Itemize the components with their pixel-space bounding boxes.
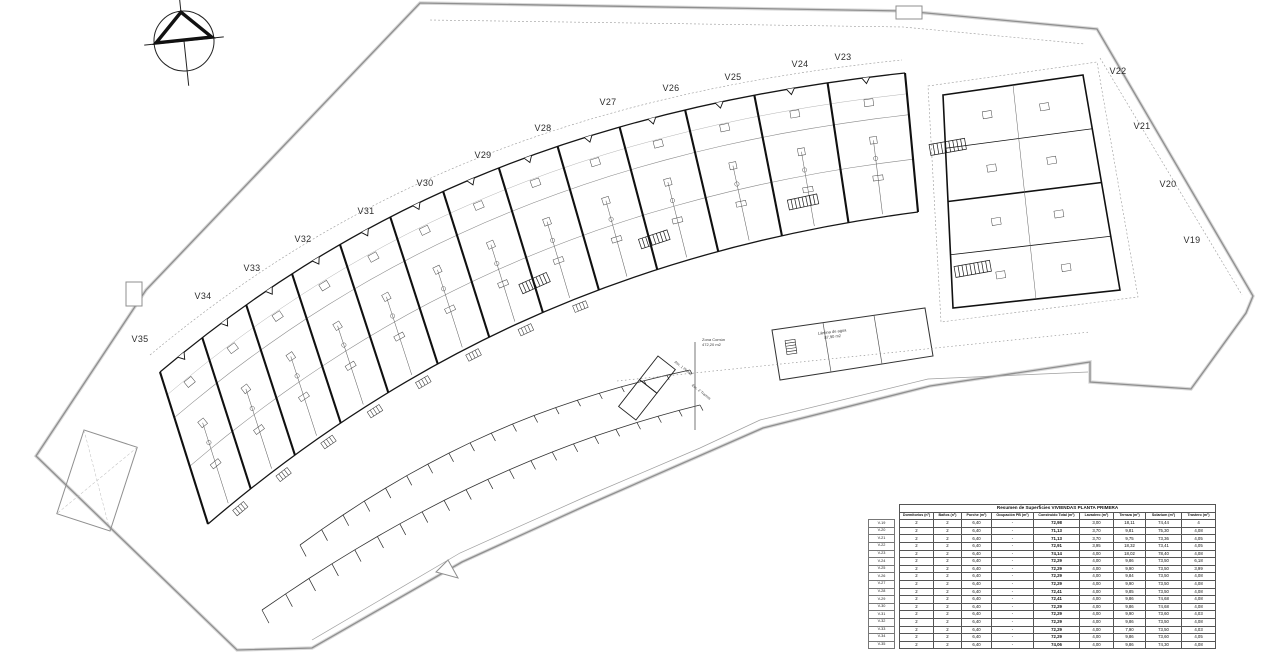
value-cell: 6,18: [1182, 558, 1216, 566]
value-cell: 6,40: [962, 542, 992, 550]
row-label: V-23: [869, 550, 895, 558]
parking-stall-line: [637, 423, 641, 430]
value-cell: 6,40: [962, 611, 992, 619]
furniture-icon: [790, 110, 800, 118]
value-cell: 73,60: [1146, 634, 1182, 642]
value-cell: 2: [900, 565, 934, 573]
value-cell: 3,99: [1182, 565, 1216, 573]
value-cell: 2: [900, 558, 934, 566]
value-cell: 74,44: [1146, 520, 1182, 528]
value-cell: 9,84: [1114, 573, 1146, 581]
boundary-notch-top: [896, 6, 922, 19]
value-cell: 2: [934, 634, 962, 642]
table-row: V-23226,40-74,144,0018,0278,404,08: [869, 550, 1216, 558]
entrance-arrow-icon: [221, 319, 231, 329]
value-cell: 72,29: [1034, 626, 1080, 634]
total-value: 68,7: [1182, 649, 1216, 653]
table-row: V-24226,40-72,294,009,8673,506,18: [869, 558, 1216, 566]
value-cell: 72,91: [1034, 542, 1080, 550]
value-cell: 72,29: [1034, 634, 1080, 642]
party-wall: [905, 73, 918, 212]
row-label: V-28: [869, 588, 895, 596]
stair-hatch-icon: [929, 138, 966, 155]
value-cell: -: [992, 596, 1034, 604]
value-cell: 74,68: [1146, 603, 1182, 611]
value-cell: 6,40: [962, 588, 992, 596]
value-cell: 72,98: [1034, 520, 1080, 528]
value-cell: -: [992, 626, 1034, 634]
table-row: V-26226,40-72,294,009,8473,504,08: [869, 573, 1216, 581]
parking-stall-line: [407, 476, 412, 486]
total-value: [962, 649, 992, 653]
value-cell: 2: [900, 596, 934, 604]
table-cell: [869, 505, 895, 513]
value-cell: 2: [900, 527, 934, 535]
row-label: V-27: [869, 580, 895, 588]
value-cell: 73,60: [1146, 611, 1182, 619]
parking-stall-line: [364, 501, 370, 511]
value-cell: 2: [900, 618, 934, 626]
furniture-icon: [991, 217, 1001, 225]
value-cell: 73,50: [1146, 580, 1182, 588]
value-cell: 4,05: [1182, 535, 1216, 543]
parking-stall-line: [355, 550, 361, 562]
stair-hatch-icon: [518, 324, 534, 336]
value-cell: 4,03: [1182, 626, 1216, 634]
parking-stall-line: [343, 515, 349, 526]
value-cell: 9,90: [1114, 580, 1146, 588]
value-cell: 4,00: [1080, 565, 1114, 573]
value-cell: 73,50: [1146, 588, 1182, 596]
row-label: V-30: [869, 603, 895, 611]
value-cell: 4,08: [1182, 641, 1216, 649]
value-cell: 4,00: [1080, 626, 1114, 634]
entrance-arrow-icon: [584, 135, 593, 143]
value-cell: 7,90: [1114, 626, 1146, 634]
table-row: V-20226,40-71,133,709,8175,304,08: [869, 527, 1216, 535]
value-cell: 2: [934, 573, 962, 581]
value-cell: 4,05: [1182, 542, 1216, 550]
parking-stall-line: [513, 424, 517, 431]
row-label: V-31: [869, 611, 895, 619]
column-header: Solarium (m²): [1146, 512, 1182, 520]
value-cell: 9,86: [1114, 634, 1146, 642]
column-header: Baños (nº): [934, 512, 962, 520]
column-header: Trastero (m²): [1182, 512, 1216, 520]
row-label: V-25: [869, 565, 895, 573]
furniture-icon: [864, 99, 874, 107]
value-cell: 72,41: [1034, 596, 1080, 604]
block-setback-dashed: [928, 62, 1138, 322]
band-bottom-facade: [208, 212, 918, 524]
value-cell: 74,30: [1146, 641, 1182, 649]
value-cell: 72,29: [1034, 618, 1080, 626]
zona-comun-label: Zona Común 472,20 m2: [702, 337, 725, 347]
furniture-icon: [1061, 263, 1071, 271]
value-cell: 9,90: [1114, 611, 1146, 619]
value-cell: 4,03: [1182, 611, 1216, 619]
value-cell: -: [992, 618, 1034, 626]
value-cell: 2: [934, 626, 962, 634]
table-row: V-30226,40-72,294,009,8674,684,08: [869, 603, 1216, 611]
value-cell: 72,29: [1034, 611, 1080, 619]
value-cell: -: [992, 603, 1034, 611]
value-cell: 4,08: [1182, 603, 1216, 611]
band-partition-line: [174, 115, 909, 418]
value-cell: 2: [934, 641, 962, 649]
parking-stall-line: [300, 545, 306, 556]
value-cell: 4,08: [1182, 618, 1216, 626]
party-wall: [620, 127, 658, 269]
value-cell: 3,00: [1080, 520, 1114, 528]
value-cell: 74,14: [1034, 550, 1080, 558]
value-cell: 71,13: [1034, 535, 1080, 543]
parking-stall-line: [622, 387, 625, 392]
value-cell: 4,08: [1182, 588, 1216, 596]
value-cell: 18,11: [1114, 520, 1146, 528]
value-cell: 74,06: [1034, 641, 1080, 649]
total-value: [992, 649, 1034, 653]
stair-hatch-icon: [787, 194, 818, 210]
table-row: V-29226,40-72,414,009,8674,684,08: [869, 596, 1216, 604]
value-cell: 4,00: [1080, 603, 1114, 611]
value-cell: 73,50: [1146, 558, 1182, 566]
table-title: Resumen de Superficies VIVIENDAS PLANTA …: [900, 505, 1216, 513]
parking-stall-line: [531, 461, 536, 470]
party-wall: [292, 274, 341, 423]
parking-stall-line: [470, 443, 474, 451]
stair-hatch-icon: [415, 376, 431, 389]
parking-stall-line: [286, 594, 293, 607]
row-label: V-24: [869, 558, 895, 566]
value-cell: 4,00: [1080, 618, 1114, 626]
parking-row-line: [262, 405, 700, 610]
table-row: V-31226,40-72,294,009,9073,604,03: [869, 611, 1216, 619]
value-cell: 9,86: [1114, 618, 1146, 626]
row-label: V-22: [869, 542, 895, 550]
parking-stall-line: [377, 536, 383, 547]
value-cell: 6,40: [962, 626, 992, 634]
value-cell: 4,05: [1182, 634, 1216, 642]
value-cell: 2: [900, 611, 934, 619]
value-cell: -: [992, 542, 1034, 550]
furniture-icon: [996, 271, 1006, 279]
furniture-icon: [1039, 103, 1049, 111]
value-cell: 6,40: [962, 565, 992, 573]
party-wall: [202, 338, 250, 489]
stair-hatch-icon: [785, 339, 797, 354]
column-header: Ocupación PB (m²): [992, 512, 1034, 520]
party-wall: [390, 217, 437, 364]
value-cell: 2: [934, 550, 962, 558]
value-cell: 2: [934, 520, 962, 528]
furniture-icon: [653, 139, 663, 148]
value-cell: 4,08: [1182, 596, 1216, 604]
parking-stall-line: [386, 488, 391, 498]
parking-stall-line: [491, 433, 495, 441]
table-row: V-34226,40-72,294,009,8673,604,05: [869, 634, 1216, 642]
value-cell: 3,95: [1080, 542, 1114, 550]
furniture-icon: [987, 164, 997, 172]
furniture-icon: [982, 110, 992, 118]
value-cell: 2: [934, 565, 962, 573]
stair-hatch-icon: [321, 435, 336, 449]
entrance-arrow-icon: [862, 77, 871, 84]
value-cell: -: [992, 611, 1034, 619]
value-cell: 2: [934, 618, 962, 626]
value-cell: 2: [934, 611, 962, 619]
furniture-icon: [368, 252, 379, 262]
parking-stall-line: [262, 610, 269, 623]
area-summary-table: Resumen de Superficies VIVIENDAS PLANTA …: [868, 504, 1220, 653]
value-cell: 73,50: [1146, 565, 1182, 573]
furniture-icon: [1054, 210, 1064, 218]
value-cell: 6,40: [962, 634, 992, 642]
party-wall: [246, 305, 295, 455]
value-cell: 2: [900, 603, 934, 611]
value-cell: 6,40: [962, 558, 992, 566]
value-cell: 6,40: [962, 618, 992, 626]
value-cell: 3,70: [1080, 535, 1114, 543]
core-rooms: [619, 356, 676, 420]
party-wall: [558, 146, 599, 290]
value-cell: 9,86: [1114, 603, 1146, 611]
value-cell: 72,29: [1034, 603, 1080, 611]
parking-stall-line: [322, 530, 328, 541]
value-cell: 6,40: [962, 603, 992, 611]
row-label: V-21: [869, 535, 895, 543]
parking-stall-line: [658, 416, 661, 422]
value-cell: 6,40: [962, 580, 992, 588]
furniture-icon: [227, 343, 238, 354]
value-cell: 18,02: [1114, 550, 1146, 558]
value-cell: 73,41: [1146, 542, 1182, 550]
parking-stall-line: [556, 408, 559, 414]
value-cell: 72,41: [1034, 588, 1080, 596]
value-cell: 4,00: [1080, 588, 1114, 596]
value-cell: 3,70: [1080, 527, 1114, 535]
value-cell: 9,90: [1114, 565, 1146, 573]
value-cell: 4,08: [1182, 573, 1216, 581]
value-cell: 2: [900, 588, 934, 596]
value-cell: 4,08: [1182, 580, 1216, 588]
table-row: V-19226,40-72,983,0018,1174,444: [869, 520, 1216, 528]
value-cell: 2: [934, 527, 962, 535]
entrance-arrow-icon: [266, 287, 276, 296]
value-cell: 73,50: [1146, 573, 1182, 581]
value-cell: 9,86: [1114, 596, 1146, 604]
value-cell: 4,00: [1080, 611, 1114, 619]
party-wall: [685, 110, 718, 251]
value-cell: 4,00: [1080, 550, 1114, 558]
row-label: V-32: [869, 618, 895, 626]
value-cell: 2: [934, 596, 962, 604]
value-cell: 2: [934, 588, 962, 596]
parking-stall-line: [700, 405, 703, 411]
value-cell: 2: [900, 580, 934, 588]
value-cell: 6,40: [962, 527, 992, 535]
value-cell: -: [992, 550, 1034, 558]
total-label: TOTAL PP: [869, 649, 895, 653]
value-cell: 4,00: [1080, 573, 1114, 581]
furniture-icon: [419, 225, 430, 235]
value-cell: 2: [934, 542, 962, 550]
stair-hatch-icon: [233, 502, 248, 516]
value-cell: 2: [900, 626, 934, 634]
entrance-arrow-icon: [361, 229, 371, 238]
parking-stall-line: [509, 470, 514, 479]
value-cell: 4,00: [1080, 596, 1114, 604]
value-cell: 4,00: [1080, 641, 1114, 649]
value-cell: 2: [934, 603, 962, 611]
value-cell: 2: [900, 520, 934, 528]
value-cell: 73,36: [1146, 535, 1182, 543]
value-cell: 2: [900, 542, 934, 550]
entrance-arrow-icon: [524, 155, 534, 163]
entrance-arrow-icon: [413, 202, 423, 211]
value-cell: 71,13: [1034, 527, 1080, 535]
value-cell: 9,85: [1114, 588, 1146, 596]
value-cell: 4,00: [1080, 580, 1114, 588]
floor-plan-canvas: V23V24V25V26V27V28V29V30V31V32V33V34V35V…: [0, 0, 1280, 653]
value-cell: -: [992, 641, 1034, 649]
totals-row: TOTAL PP1233,8068,7: [869, 649, 1216, 653]
parking-stall-line: [466, 490, 471, 500]
value-cell: 74,68: [1146, 596, 1182, 604]
value-cell: 72,29: [1034, 573, 1080, 581]
value-cell: -: [992, 588, 1034, 596]
value-cell: 2: [900, 550, 934, 558]
parking-stall-line: [534, 416, 538, 423]
column-header: Dormitorios (nº): [900, 512, 934, 520]
furniture-icon: [720, 123, 730, 132]
value-cell: 2: [934, 535, 962, 543]
party-wall: [754, 95, 782, 236]
value-cell: 6,40: [962, 535, 992, 543]
party-wall: [160, 372, 208, 524]
parking-stall-line: [422, 512, 428, 523]
band-partition-line: [190, 159, 913, 466]
value-cell: 2: [900, 573, 934, 581]
column-header: Lavadero (m²): [1080, 512, 1114, 520]
parking-stall-line: [309, 578, 316, 590]
value-cell: 4,08: [1182, 527, 1216, 535]
value-cell: -: [992, 558, 1034, 566]
parking-stall-line: [595, 436, 599, 444]
parking-stall-line: [616, 429, 620, 436]
value-cell: 6,40: [962, 596, 992, 604]
value-cell: 2: [900, 634, 934, 642]
summary-table: Resumen de Superficies VIVIENDAS PLANTA …: [868, 504, 1216, 653]
total-value: [934, 649, 962, 653]
zona-comun-area: 472,20 m2: [702, 342, 725, 347]
value-cell: 2: [934, 580, 962, 588]
value-cell: 78,40: [1146, 550, 1182, 558]
value-cell: 6,40: [962, 573, 992, 581]
parking-stall-line: [449, 453, 454, 462]
furniture-icon: [272, 311, 283, 322]
column-header: Porche (m²): [962, 512, 992, 520]
value-cell: 4,00: [1080, 558, 1114, 566]
block-party-wall: [951, 236, 1111, 255]
table-cell: [869, 512, 895, 520]
total-value: [900, 649, 934, 653]
value-cell: 6,40: [962, 641, 992, 649]
value-cell: 6,40: [962, 550, 992, 558]
row-label: V-19: [869, 520, 895, 528]
row-label: V-33: [869, 626, 895, 634]
stair-hatch-icon: [276, 468, 291, 482]
table-row: V-25226,40-72,294,009,9073,503,99: [869, 565, 1216, 573]
total-value: 1233,80: [1034, 649, 1080, 653]
stair-hatch-icon: [519, 272, 550, 293]
furniture-icon: [1047, 156, 1057, 164]
parking-stall-line: [400, 524, 406, 535]
parking-stall-line: [488, 479, 493, 489]
stair-hatch-icon: [573, 301, 589, 313]
value-cell: 2: [934, 558, 962, 566]
value-cell: -: [992, 520, 1034, 528]
value-cell: 6,40: [962, 520, 992, 528]
table-row: V-21226,40-71,133,709,7573,364,05: [869, 535, 1216, 543]
entrance-arrow-icon: [312, 257, 322, 266]
value-cell: 73,50: [1146, 618, 1182, 626]
value-cell: 72,29: [1034, 580, 1080, 588]
setback-dashed-top: [430, 20, 1085, 44]
column-header: Construido Total (m²): [1034, 512, 1080, 520]
parking-stall-line: [577, 400, 580, 406]
entrance-arrow-icon: [467, 178, 477, 187]
total-value: [1146, 649, 1182, 653]
setback-dashed-right: [1100, 58, 1242, 295]
boundary-notch-left: [126, 282, 142, 306]
table-row: V-22226,40-72,913,9518,3273,414,05: [869, 542, 1216, 550]
pool-outline: [772, 308, 933, 380]
total-value: [1080, 649, 1114, 653]
value-cell: 4,08: [1182, 550, 1216, 558]
value-cell: 9,86: [1114, 641, 1146, 649]
table-row: V-27226,40-72,294,009,9073,504,08: [869, 580, 1216, 588]
total-value: [1114, 649, 1146, 653]
row-label: V-34: [869, 634, 895, 642]
value-cell: 9,81: [1114, 527, 1146, 535]
parking-stall-line: [332, 564, 338, 576]
stair-hatch-icon: [466, 349, 482, 362]
value-cell: 9,75: [1114, 535, 1146, 543]
row-label: V-26: [869, 573, 895, 581]
row-label: V-20: [869, 527, 895, 535]
parking-stall-line: [679, 410, 682, 416]
value-cell: 2: [900, 641, 934, 649]
table-row: V-33226,40-72,294,007,9073,504,03: [869, 626, 1216, 634]
parking-stall-line: [574, 444, 578, 452]
band-partition-line: [167, 94, 907, 395]
value-cell: 4: [1182, 520, 1216, 528]
value-cell: 73,50: [1146, 626, 1182, 634]
party-wall: [443, 191, 489, 337]
parking-stall-line: [599, 393, 602, 399]
value-cell: 9,86: [1114, 558, 1146, 566]
table-row: V-28226,40-72,414,009,8573,504,08: [869, 588, 1216, 596]
row-label: V-29: [869, 596, 895, 604]
value-cell: -: [992, 634, 1034, 642]
table-row: V-32226,40-72,294,009,8673,504,08: [869, 618, 1216, 626]
column-header: Terraza (m²): [1114, 512, 1146, 520]
entrance-arrow-icon: [178, 352, 188, 362]
parking-stall-line: [428, 464, 433, 473]
value-cell: -: [992, 580, 1034, 588]
value-cell: 4,00: [1080, 634, 1114, 642]
